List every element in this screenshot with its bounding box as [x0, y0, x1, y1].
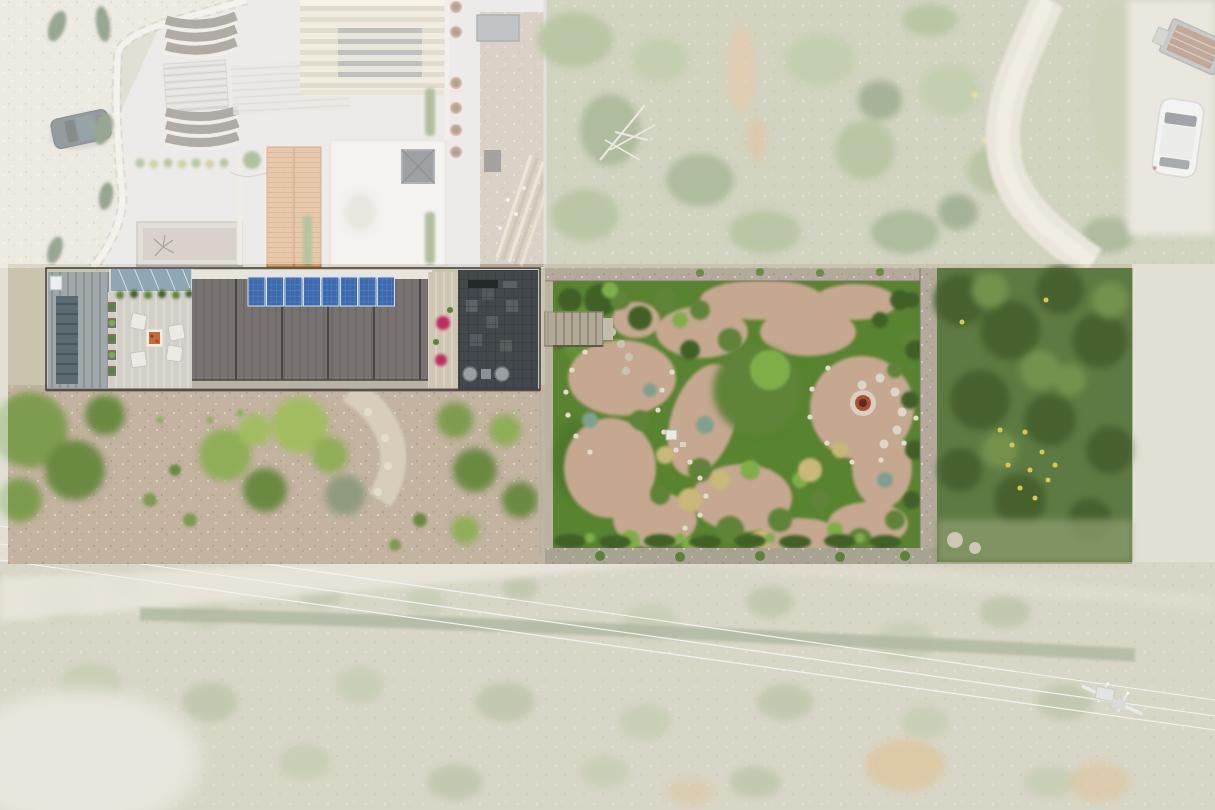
- property-lot: [0, 266, 1134, 564]
- patio-round-table: [495, 367, 509, 381]
- bougainvillea-pot: [436, 316, 450, 330]
- garden-wood-stairs: [545, 312, 613, 346]
- rooftop-unit: [50, 276, 62, 290]
- patio-square: [481, 369, 491, 379]
- mask-left: [0, 264, 8, 564]
- skylight-strip: [110, 268, 192, 292]
- lounge-chair: [166, 345, 183, 362]
- patio-round-table: [463, 367, 477, 381]
- stair-landing: [603, 318, 613, 340]
- mask-top: [0, 0, 1215, 264]
- lounge-chair: [168, 324, 185, 341]
- louver-section: [56, 296, 78, 384]
- front-yard: [0, 385, 545, 564]
- mask-bottom: [0, 564, 1215, 810]
- rooftop-equipment: [468, 280, 498, 288]
- garden-table: [666, 430, 677, 440]
- lounge-chair: [130, 351, 147, 368]
- metal-roof-west: [48, 272, 110, 388]
- modern-house: [46, 268, 540, 392]
- bougainvillea-pot: [435, 354, 447, 366]
- mask-right: [1132, 264, 1215, 564]
- walled-garden: [545, 268, 937, 564]
- timber-deck: [108, 290, 194, 388]
- dry-grass: [678, 488, 702, 512]
- lounge-chair: [129, 313, 147, 331]
- agave: [696, 416, 714, 434]
- fire-pit: [850, 390, 876, 416]
- rear-thicket: [934, 266, 1134, 562]
- pergola-patio: [458, 270, 538, 390]
- aerial-photo: [0, 0, 1215, 810]
- stone-slab: [858, 381, 867, 390]
- east-deck-strip: [428, 272, 458, 388]
- garden-bench: [680, 442, 686, 447]
